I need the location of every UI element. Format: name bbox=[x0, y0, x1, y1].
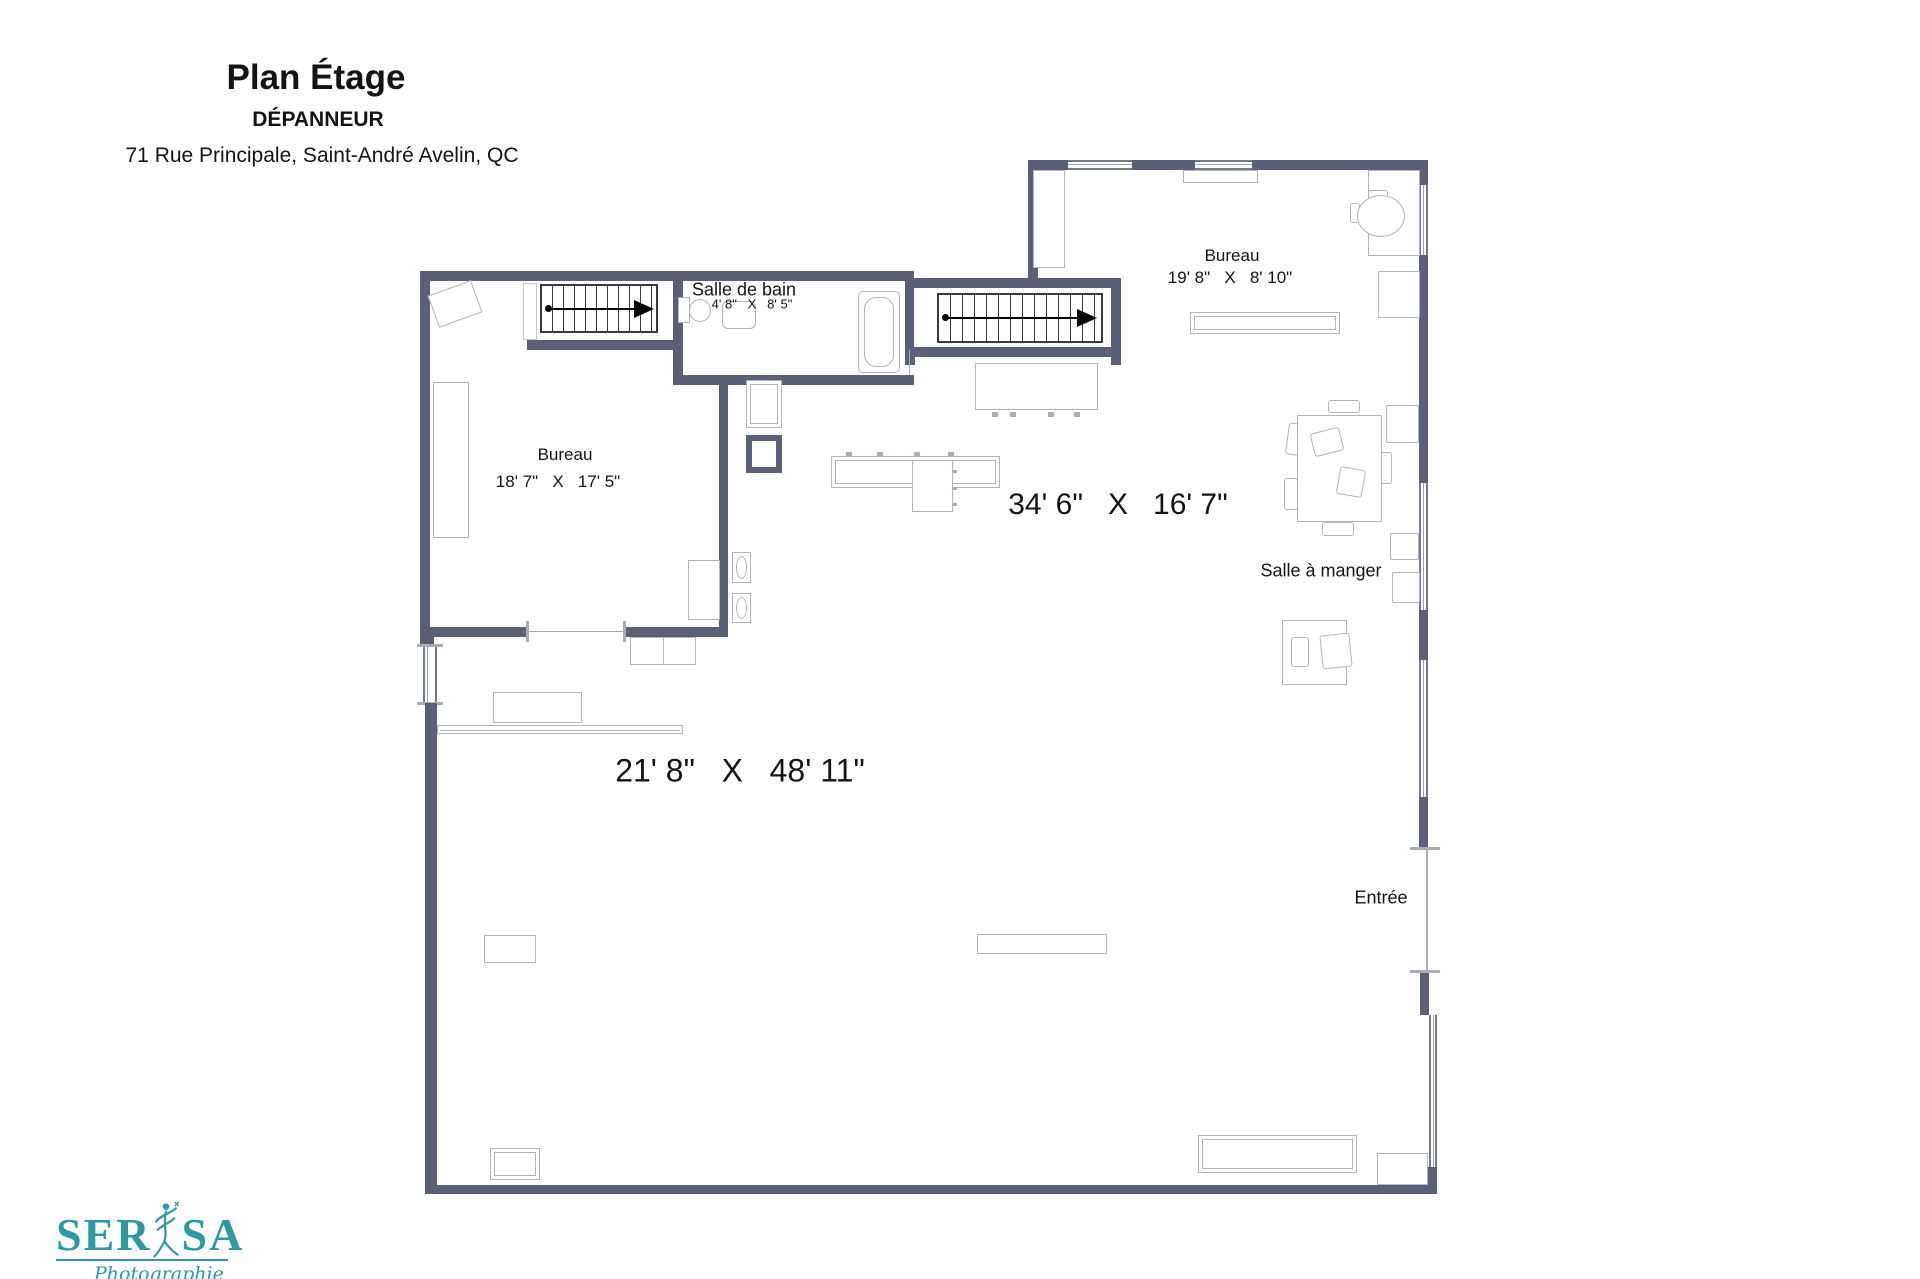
window-right-4 bbox=[1429, 1015, 1437, 1167]
counter-foot-4 bbox=[1074, 412, 1080, 417]
tilted-desk bbox=[428, 280, 483, 328]
window-chair-3 bbox=[1392, 572, 1420, 603]
bathtub-basin bbox=[864, 297, 894, 367]
wall-corridor2-top bbox=[905, 278, 1121, 288]
address-line: 71 Rue Principale, Saint-André Avelin, Q… bbox=[126, 144, 519, 168]
wall-corridor1-bottom bbox=[527, 340, 683, 350]
floor-plan-page: Plan Étage DÉPANNEUR 71 Rue Principale, … bbox=[0, 0, 1920, 1279]
dining1-chair-left-bottom bbox=[1284, 478, 1298, 510]
counter-tab-2 bbox=[877, 452, 883, 456]
photographer-logo: SER SA Photographie bbox=[56, 1200, 244, 1279]
display-counter-long bbox=[437, 725, 683, 734]
counter-foot-3 bbox=[1048, 412, 1054, 417]
dining-table-2 bbox=[1282, 620, 1347, 685]
entrance-tick-top bbox=[1410, 847, 1440, 850]
wall-bureau2-top-c bbox=[1252, 160, 1428, 170]
room-dims-main-area: 34' 6" X 16' 7" bbox=[1008, 488, 1228, 522]
fridge-tick-2 bbox=[953, 487, 957, 490]
corridor2-jamb-left bbox=[905, 357, 915, 365]
wall-bathroom-right-upper bbox=[905, 278, 914, 350]
wall-left-lower bbox=[425, 703, 437, 1185]
wall-corridor2-right bbox=[1111, 278, 1121, 357]
dining-table-1 bbox=[1297, 415, 1382, 522]
shaft-column bbox=[746, 435, 782, 473]
shelf-mid-left bbox=[484, 935, 536, 963]
counter-box bbox=[493, 692, 582, 723]
bathroom-door-line bbox=[909, 350, 910, 375]
desk-bureau2-lower bbox=[1378, 271, 1420, 318]
dining1-chair-top bbox=[1328, 400, 1360, 413]
box-bottom-left bbox=[490, 1148, 540, 1180]
stair-direction-arrow bbox=[1077, 309, 1097, 327]
room-label-bureau-left: Bureau bbox=[538, 445, 593, 465]
wall-top-left-rooms bbox=[420, 271, 914, 281]
round-table bbox=[1357, 195, 1405, 237]
logo-text-left: SER bbox=[56, 1212, 151, 1258]
cabinet-double bbox=[630, 637, 696, 665]
dining1-chair-bottom bbox=[1322, 522, 1354, 536]
room-label-salle-a-manger: Salle à manger bbox=[1260, 561, 1381, 582]
wall-right-a bbox=[1419, 160, 1428, 185]
shelf-bureau2 bbox=[1183, 170, 1258, 183]
dining2-chair-2 bbox=[1319, 633, 1352, 670]
wall-bathroom-bottom bbox=[673, 375, 914, 385]
bureau1-door-jamb-right bbox=[623, 621, 626, 642]
fridge-cabinet bbox=[912, 460, 953, 512]
counter-bureau2-bottom bbox=[1190, 312, 1340, 334]
shelf-bottom-center bbox=[977, 934, 1107, 954]
bureau1-door-line bbox=[529, 631, 623, 632]
bathtub bbox=[858, 291, 900, 373]
dining1-chair-inner-1 bbox=[1310, 427, 1345, 458]
corridor2-jamb-right bbox=[1111, 357, 1121, 365]
stair-run-line bbox=[944, 317, 1082, 319]
window-right-2 bbox=[1419, 483, 1428, 610]
stove-burner-1 bbox=[732, 552, 751, 583]
dining1-chair-inner-2 bbox=[1336, 466, 1366, 498]
window-chair-1 bbox=[1386, 405, 1419, 443]
counter-foot-1 bbox=[992, 412, 998, 417]
room-dims-grande-salle: 21' 8" X 48' 11" bbox=[615, 753, 865, 790]
wall-bureau2-top-b bbox=[1132, 160, 1195, 170]
closet-bureau2 bbox=[1033, 170, 1065, 268]
wall-right-corner bbox=[1428, 1167, 1437, 1194]
wall-right-d bbox=[1419, 797, 1428, 850]
fridge-tick-3 bbox=[953, 503, 957, 506]
counter-bottom-right bbox=[1198, 1135, 1357, 1173]
room-dims-bureau-left: 18' 7" X 17' 5" bbox=[496, 472, 620, 492]
room-label-entree: Entrée bbox=[1354, 888, 1407, 909]
wall-corridor2-bottom bbox=[905, 347, 1121, 357]
shelf-left-wall bbox=[433, 382, 469, 538]
corridor1-door-leaf bbox=[523, 283, 537, 340]
counter-tab-4 bbox=[948, 452, 954, 456]
wall-bottom bbox=[425, 1185, 1437, 1194]
toilet-bowl bbox=[689, 299, 711, 322]
wall-right-b bbox=[1419, 255, 1428, 483]
window-right-1 bbox=[1419, 185, 1428, 255]
fridge-tick-1 bbox=[953, 470, 957, 473]
page-subtitle: DÉPANNEUR bbox=[252, 108, 383, 132]
window-bureau2-top-2 bbox=[1195, 160, 1252, 170]
wall-bureau1-bottom-b bbox=[625, 627, 728, 637]
counter-foot-2 bbox=[1010, 412, 1016, 417]
stair-direction-arrow bbox=[634, 300, 654, 318]
island-counter bbox=[746, 380, 782, 428]
window-left-tick-top bbox=[417, 644, 443, 647]
wall-bathroom-left bbox=[673, 271, 683, 385]
room-dims-bureau-top-right: 19' 8" X 8' 10" bbox=[1168, 268, 1292, 288]
stair-run-start bbox=[545, 305, 552, 312]
wall-bureau1-right bbox=[719, 375, 728, 637]
wall-right-c bbox=[1419, 610, 1428, 660]
desk-bureau1 bbox=[688, 560, 720, 620]
entrance-door-line bbox=[1426, 850, 1428, 971]
counter-under-stairs bbox=[975, 363, 1098, 410]
dining2-chair-1 bbox=[1291, 637, 1309, 667]
room-label-bureau-top-right: Bureau bbox=[1205, 246, 1260, 266]
staircase-left bbox=[540, 284, 658, 333]
window-right-3 bbox=[1419, 660, 1428, 797]
stove-burner-2 bbox=[732, 593, 751, 623]
window-chair-2 bbox=[1390, 533, 1419, 560]
counter-tab-3 bbox=[914, 452, 920, 456]
dancer-icon bbox=[149, 1200, 183, 1258]
window-left-wall bbox=[423, 647, 437, 703]
logo-text-right: SA bbox=[181, 1212, 244, 1258]
staircase-right bbox=[937, 293, 1103, 343]
room-dims-salle-de-bain: 4' 8" X 8' 5" bbox=[712, 297, 793, 312]
counter-tab-1 bbox=[846, 452, 852, 456]
page-title: Plan Étage bbox=[227, 58, 406, 98]
window-bureau2-top-1 bbox=[1068, 160, 1132, 170]
box-bottom-right bbox=[1377, 1153, 1428, 1185]
wall-right-e bbox=[1420, 973, 1429, 1015]
stair-run-line bbox=[547, 308, 639, 310]
stair-run-start bbox=[942, 314, 949, 321]
wall-bureau1-bottom-a bbox=[420, 627, 528, 637]
wall-left-upper bbox=[420, 271, 430, 637]
logo-tagline: Photographie bbox=[94, 1263, 244, 1279]
